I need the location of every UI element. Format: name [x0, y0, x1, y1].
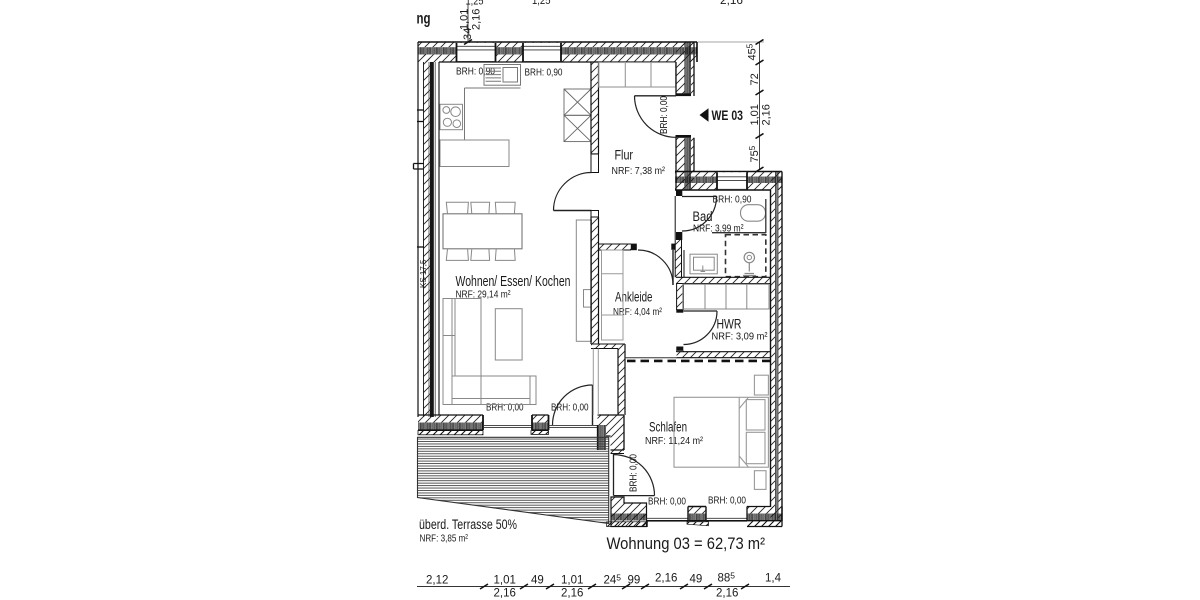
svg-text:WE 03: WE 03 [712, 108, 744, 123]
svg-text:ng: ng [417, 11, 431, 28]
svg-text:BRH: 0,00: BRH: 0,00 [708, 496, 746, 507]
svg-text:NRF: 3,09 m²: NRF: 3,09 m² [712, 331, 768, 343]
svg-text:1,25: 1,25 [466, 0, 484, 8]
svg-text:1,01: 1,01 [749, 104, 761, 125]
svg-text:Wohnen/ Essen/ Kochen: Wohnen/ Essen/ Kochen [456, 273, 571, 290]
svg-text:1,01: 1,01 [561, 575, 583, 587]
svg-text:49: 49 [531, 575, 544, 587]
svg-text:2,16: 2,16 [720, 0, 743, 7]
svg-text:99: 99 [628, 575, 641, 587]
svg-text:2,12: 2,12 [426, 575, 448, 587]
svg-text:Ankleide: Ankleide [615, 290, 653, 305]
svg-text:Wohnung 03 = 62,73 m²: Wohnung 03 = 62,73 m² [607, 535, 766, 553]
svg-text:1,4: 1,4 [765, 573, 782, 585]
svg-text:49: 49 [690, 574, 703, 586]
svg-text:Flur: Flur [615, 148, 634, 163]
svg-text:BRH: 0,00: BRH: 0,00 [659, 96, 670, 134]
svg-text:überd. Terrasse 50%: überd. Terrasse 50% [419, 517, 517, 532]
svg-text:BRH: 0,90: BRH: 0,90 [525, 68, 563, 79]
svg-text:2,16: 2,16 [561, 588, 583, 600]
svg-text:NRF: 7,38 m²: NRF: 7,38 m² [612, 165, 666, 177]
svg-text:2,16: 2,16 [494, 588, 516, 600]
svg-text:NRF: 3,85 m²: NRF: 3,85 m² [420, 533, 469, 545]
svg-text:1,25: 1,25 [532, 0, 551, 7]
svg-text:72: 72 [749, 73, 761, 85]
svg-text:2,16: 2,16 [761, 104, 773, 125]
svg-text:1,01: 1,01 [459, 9, 471, 30]
svg-text:2,16: 2,16 [716, 588, 738, 600]
svg-text:Schlafen: Schlafen [649, 420, 687, 435]
svg-text:NRF: 4,04 m²: NRF: 4,04 m² [613, 306, 662, 318]
svg-text:2,16: 2,16 [471, 9, 483, 30]
svg-text:HWR: HWR [717, 317, 742, 332]
svg-text:BRH: 0,00: BRH: 0,00 [648, 497, 686, 508]
svg-text:2,16: 2,16 [655, 573, 677, 585]
svg-text:BRH: 0,00: BRH: 0,00 [551, 403, 589, 414]
svg-text:BRH: 0,90: BRH: 0,90 [713, 195, 752, 206]
svg-text:1,01: 1,01 [494, 575, 516, 587]
svg-text:BRH: 0,00: BRH: 0,00 [629, 454, 640, 492]
